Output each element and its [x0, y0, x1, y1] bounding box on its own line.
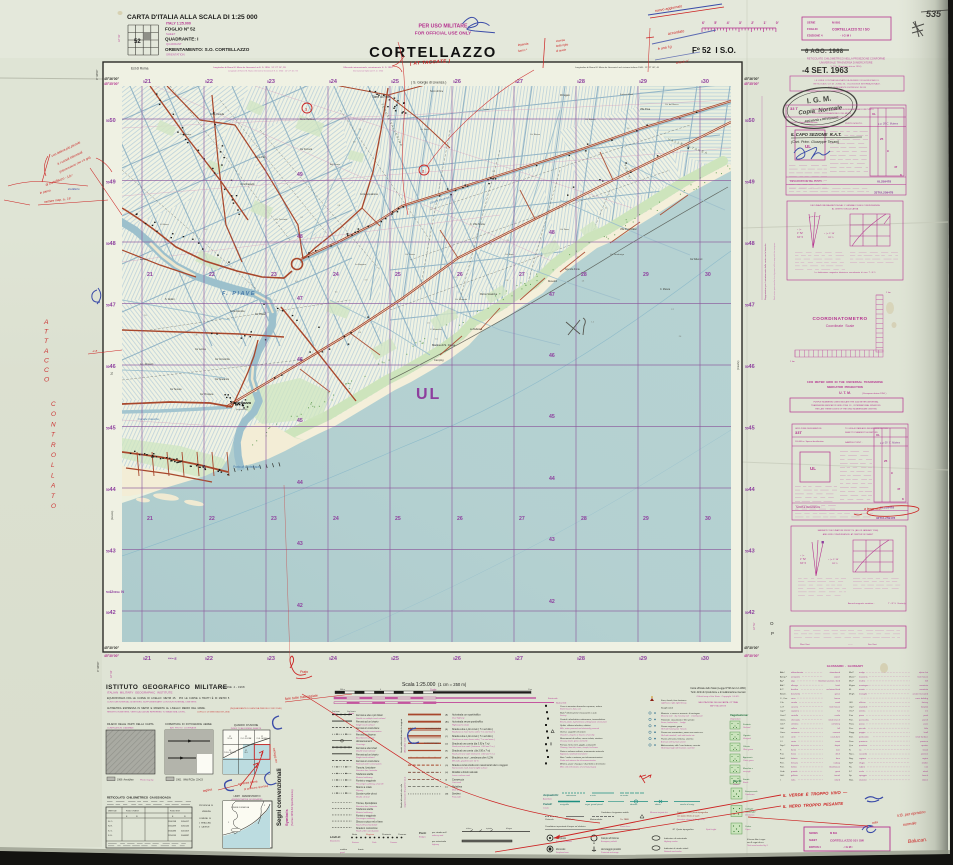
svg-text:5050417: 5050417 [181, 821, 190, 823]
svg-text:Ca' Prospera: Ca' Prospera [200, 393, 214, 396]
svg-text:Sp.: Sp. [849, 775, 853, 777]
svg-text:26: 26 [457, 272, 463, 278]
svg-text:province: province [920, 740, 929, 743]
svg-text:45°36'00”: 45°36'00” [744, 77, 759, 81]
svg-text:molgo: molgo [859, 672, 866, 674]
svg-text:small harbour: small harbour [915, 736, 928, 739]
svg-text:Road,two or more lanes wide (: Road,two or more lanes wide ( 7 m and mo… [452, 731, 495, 734]
svg-text:abandoned: abandoned [830, 672, 841, 674]
svg-text:Staz.ⁱⁱ radio e antenne per te: Staz.ⁱⁱ radio e antenne per telecomunica… [560, 756, 603, 759]
svg-text:Ca' Gradenigo: Ca' Gradenigo [610, 253, 625, 256]
svg-text:Bosch.: Bosch. [780, 694, 787, 696]
svg-text:Trincea, Spondplane: Trincea, Spondplane [356, 803, 378, 805]
svg-text:Strada a due o più corsie ( 7: Strada a due o più corsie ( 7 m ed oltre… [452, 735, 493, 738]
svg-text:Electric plants, hydroelectric: Electric plants, hydroelectric undergrou… [560, 721, 607, 724]
svg-text:Ca' Fornera: Ca' Fornera [300, 148, 313, 151]
svg-text:1.8: 1.8 [144, 315, 147, 317]
svg-text:su arcate: su arcate [620, 794, 629, 797]
svg-text:cascina: cascina [791, 706, 799, 708]
svg-text:Limiti di:: Limiti di: [330, 835, 341, 839]
svg-text:Ellissoide internazionale, ori: Ellissoide internazionale, orientamento … [343, 66, 393, 69]
svg-text:Ancoraggio protetto: Ancoraggio protetto [600, 848, 622, 851]
svg-text:1° 52': 1° 52' [797, 232, 804, 235]
svg-text:Stone houses, huts, ruin: Stone houses, huts, ruin [560, 708, 581, 711]
svg-text:A: A [50, 483, 55, 490]
svg-text:Ca' Alberoni: Ca' Alberoni [690, 258, 703, 261]
svg-text:Longitude of Rome M. Mario ref: Longitude of Rome M. Mario referred to G… [228, 70, 299, 73]
svg-text:passo: passo [859, 724, 865, 726]
svg-text:station: station [922, 779, 929, 782]
svg-text:Ferrovia ad un binario: Ferrovia ad un binario [356, 754, 379, 756]
svg-text:S. Isidoro: S. Isidoro [165, 298, 175, 301]
svg-text:2.1: 2.1 [430, 208, 433, 210]
svg-text:AIR PHOTO COVERAGE: AIR PHOTO COVERAGE [170, 726, 197, 729]
svg-text:Crossings: Crossings [356, 743, 365, 746]
svg-text:Scala 1:25.000: Scala 1:25.000 [402, 682, 436, 688]
svg-text:Strada ad una corsia (da 3.50: Strada ad una corsia (da 3.50 a 7 m) [452, 750, 490, 753]
svg-text:Campo di fortuna: Campo di fortuna [601, 837, 619, 840]
svg-text:abbandonato: abbandonato [791, 671, 804, 674]
svg-text:Ponti:: Ponti: [419, 831, 426, 835]
svg-text:0° 16'00”: 0° 16'00” [95, 70, 99, 80]
svg-text:pass: pass [924, 724, 928, 726]
svg-text:33TUL259478: 33TUL259478 [874, 191, 894, 195]
svg-text:Parr.: Parr. [849, 718, 854, 721]
svg-text:rivestimento leggero: rivestimento leggero [424, 742, 439, 745]
svg-text:Radio and antenna for telecomm: Radio and antenna for telecommunication [560, 759, 596, 762]
svg-text:S. O.: S. O. [108, 830, 113, 832]
svg-text:ospedale: ospedale [859, 706, 868, 708]
svg-text:RILIEVO DELLE PARTI DELLA: RILIEVO DELLE PARTI DELLA CARTA [107, 723, 154, 726]
svg-text:UL: UL [805, 144, 811, 149]
svg-text:49: 49 [297, 172, 303, 178]
svg-text:factory: factory [922, 701, 929, 704]
svg-text:522: 522 [205, 79, 213, 85]
svg-text:Boundaries: Boundaries [330, 840, 340, 842]
svg-text:Ca' Rossa: Ca' Rossa [530, 134, 541, 136]
svg-text:moraghe: moraghe [859, 693, 868, 696]
svg-text:Fatt.ᵃ: Fatt.ᵃ [780, 757, 785, 760]
svg-text:Road,two or more lanes wide (: Road,two or more lanes wide ( 7 m and mo… [452, 738, 495, 741]
svg-text:C: C [44, 357, 49, 364]
svg-text:46: 46 [297, 357, 303, 363]
svg-text:530: 530 [701, 656, 709, 662]
svg-text:Corte Cortelle: Corte Cortelle [210, 113, 225, 116]
svg-text:45°35'00”: 45°35'00” [744, 82, 759, 86]
svg-text:Agrumeto: Agrumeto [742, 756, 753, 759]
svg-text:IV S.E. JESOLO: IV S.E. JESOLO [224, 752, 236, 754]
svg-text:Attraversamenti: Attraversamenti [355, 740, 373, 743]
svg-text:Porto di Cortellazzo: Porto di Cortellazzo [233, 465, 261, 469]
svg-text:45°30'00”: 45°30'00” [744, 654, 759, 658]
svg-text:RETICOLATO U.T.M. ZONA 33 ,: RETICOLATO U.T.M. ZONA 33 , ELLISSOIDE I… [814, 83, 881, 86]
svg-text:THE LAST THREE DIGITS OF THE G: THE LAST THREE DIGITS OF THE GRID NUMBER… [815, 408, 878, 411]
svg-text:Coll.: Coll. [780, 728, 785, 730]
svg-text:Ferr.: Ferr. [780, 761, 785, 764]
svg-text:+ | = 1° 36': + | = 1° 36' [824, 233, 835, 235]
svg-text:Abbeveratoio, abb.ᵒ con fontan: Abbeveratoio, abb.ᵒ con fontana, cascata [660, 744, 701, 747]
svg-text:QUADRANT: QUADRANT [166, 42, 182, 46]
svg-text:45°35'00”: 45°35'00” [104, 82, 119, 86]
svg-text:Official map of the State. Co: Official map of the State. Copyright I.G… [697, 695, 740, 698]
svg-text:27: 27 [519, 272, 525, 278]
svg-text:26: 26 [457, 516, 463, 522]
svg-text:Ferrovia ad un binario: Ferrovia ad un binario [356, 722, 379, 724]
svg-text:Agenzia Fonte: Agenzia Fonte [565, 268, 581, 271]
svg-text:ORIENTATION: ORIENTATION [166, 52, 185, 56]
svg-text:2.2: 2.2 [671, 309, 674, 311]
svg-text:Ski-lift, ski trail: Ski-lift, ski trail [356, 795, 370, 798]
svg-text:Fort.: Fort. [780, 766, 785, 769]
svg-text:railway: railway [834, 761, 841, 764]
svg-text:Woods: Woods [733, 784, 739, 786]
svg-text:Mass.ᵃ: Mass.ᵃ [849, 676, 856, 678]
svg-text:Pietra o colonna miliaria, mon: Pietra o colonna miliaria, monumento not… [560, 750, 605, 753]
svg-text:Corte Castello: Corte Castello [240, 183, 255, 186]
svg-text:Regione: Regione [366, 834, 375, 836]
svg-text:Dual highway: Dual highway [452, 717, 465, 719]
svg-text:MAP EVALUATION: MAP EVALUATION [710, 704, 727, 707]
svg-text:parish: parish [922, 718, 929, 721]
svg-text:N. O.: N. O. [108, 821, 113, 823]
svg-text:bonifica: bonifica [791, 689, 799, 691]
svg-text:527: 527 [515, 79, 523, 85]
svg-text:Comune: Comune [398, 834, 407, 836]
svg-text:Sempreverde: Sempreverde [745, 790, 758, 793]
svg-text:0.6: 0.6 [489, 243, 492, 245]
svg-text:Masonry wall dry masonry wa: Masonry wall dry masonry wall retaining … [661, 715, 703, 718]
svg-text:( S. Giorgio di Livenza ): ( S. Giorgio di Livenza ) [411, 81, 446, 85]
svg-text:Lighthouse, light, lighted buo: Lighthouse, light, lighted buoy [661, 702, 688, 705]
svg-text:2.1: 2.1 [605, 208, 608, 210]
svg-text:Slipway: Slipway [356, 790, 364, 792]
svg-text:46: 46 [549, 353, 555, 359]
svg-text:con rivestimento duro: con rivestimento duro [425, 727, 441, 730]
svg-text:wharf: wharf [923, 770, 929, 773]
svg-text:+ | =: + | = [800, 555, 805, 557]
svg-text:CON L'APPROSSIMAZIONE DI 100 M: CON L'APPROSSIMAZIONE DI 100 METRI [812, 112, 852, 115]
svg-text:52: 52 [245, 736, 247, 738]
svg-text:Strada con muri , pendenza ol: Strada con muri , pendenza oltre il 12% [452, 757, 493, 760]
svg-text:Sbocco a picco ed a frana: Sbocco a picco ed a frana [356, 822, 383, 824]
svg-text:International Spheroid E. D.: International Spheroid E. D. 1950 [353, 70, 384, 73]
svg-text:Stato: Stato [352, 833, 358, 836]
svg-text:L: L [51, 472, 55, 479]
svg-text:UL259478: UL259478 [877, 180, 891, 184]
svg-text:Canali:: Canali: [543, 802, 552, 806]
svg-text:0.8: 0.8 [194, 335, 197, 337]
svg-text:(Norme 1959-64 Specifications): (Norme 1959-64 Specifications) [290, 789, 294, 826]
svg-text:Protected anchorage: Protected anchorage [601, 851, 619, 854]
svg-text:Vegetazione:: Vegetazione: [730, 713, 748, 717]
svg-text:1961 Wild RC5a 23×23: 1961 Wild RC5a 23×23 [176, 778, 203, 781]
svg-text:Canals: Canals [543, 807, 549, 809]
svg-text:DESIGNAZIONE DEL PUNTO :: DESIGNAZIONE DEL PUNTO : [790, 180, 824, 183]
svg-text:fiume: fiume [791, 749, 797, 751]
svg-text:F. PIAVE: F. PIAVE [222, 291, 256, 297]
svg-text:Autostrada con spartitraffico: Autostrada con spartitraffico [451, 714, 481, 717]
svg-text:- I G M I: - I G M I [840, 34, 851, 38]
svg-text:Vigneto: Vigneto [743, 734, 751, 737]
svg-text:47: 47 [297, 296, 303, 302]
svg-text:Statute mile: Statute mile [548, 697, 558, 700]
svg-text:▴ q. 05 C. Mutera: ▴ q. 05 C. Mutera [878, 122, 898, 126]
svg-text:Well with windmill, well with: Well with windmill, well with bucket etc… [661, 734, 695, 737]
svg-text:boschetto: boschetto [791, 693, 801, 696]
svg-text:Il bosco fitto è rappr.: Il bosco fitto è rappr. [747, 838, 766, 841]
svg-text:Ag.ᵃ: Ag.ᵃ [780, 680, 784, 683]
svg-text:Cast.ᵒ: Cast.ᵒ [780, 714, 786, 717]
svg-text:rudere: rudere [859, 766, 866, 769]
svg-text:2': 2' [751, 21, 754, 25]
svg-text:30: 30 [705, 272, 711, 278]
svg-text:Thick wood marked by 3: Thick wood marked by 3 [747, 845, 768, 847]
svg-text:FOR OFFICIAL USE ONLY: FOR OFFICIAL USE ONLY [415, 31, 471, 36]
svg-text:5040887: 5040887 [181, 835, 190, 837]
svg-text:mountain: mountain [919, 684, 928, 687]
svg-text:1000 METER GRID IN THE UN: 1000 METER GRID IN THE UNIVERSAL TRANSVE… [807, 380, 883, 384]
svg-text:cespugli: cespugli [743, 771, 751, 773]
svg-text:M 891: M 891 [832, 21, 841, 25]
svg-text:Acquedotti:: Acquedotti: [542, 793, 559, 797]
svg-text:Ca' Emo: Ca' Emo [505, 254, 514, 256]
svg-text:canal: canal [835, 702, 841, 704]
svg-text:AND GRID CONVERGENCE AT CENTE: AND GRID CONVERGENCE AT CENTER OF SHEET [823, 533, 874, 536]
svg-text:COORDINATOMETRO: COORDINATOMETRO [812, 316, 867, 321]
svg-text:parrocchia: parrocchia [859, 718, 870, 721]
svg-text:42: 42 [297, 603, 303, 609]
svg-text:Mul.ᵒ: Mul.ᵒ [849, 681, 854, 683]
svg-text:FOGLIO: FOGLIO [807, 27, 819, 31]
svg-text:Corte Palù: Corte Palù [255, 156, 267, 159]
svg-text:knoll: knoll [924, 732, 929, 734]
svg-text:Chies.: Chies. [780, 719, 786, 721]
svg-text:Aqueducts: Aqueducts [542, 797, 552, 800]
svg-text:RETICOLATO CHILOMETRICO GAUS: RETICOLATO CHILOMETRICO GAUSS-BOAGA [107, 796, 171, 800]
svg-text:- I G M I: - I G M I [843, 845, 853, 849]
svg-text:Ca' Bianca: Ca' Bianca [585, 119, 596, 121]
svg-text:Latifoglie: Latifoglie [745, 808, 754, 811]
svg-text:2.8: 2.8 [337, 205, 340, 207]
svg-text:Road,one lane wide ( between: Road,one lane wide ( between 3.50 and 7 … [452, 752, 495, 755]
svg-text:7a. 1969: 7a. 1969 [620, 819, 629, 821]
svg-text:Muriccio a secco e macerie d: Muriccio a secco e macerie di sostegno [661, 712, 700, 715]
svg-text:25: 25 [884, 459, 888, 463]
svg-text:Cortellazzo: Cortellazzo [231, 401, 252, 405]
svg-text:M.gna: M.gna [849, 685, 856, 687]
svg-text:Scovia e piste da sci: Scovia e piste da sci [356, 793, 377, 796]
svg-text:(1 cm = 250 m): (1 cm = 250 m) [438, 682, 467, 687]
svg-text:Bridges: Bridges [419, 836, 426, 838]
svg-text:CORTELLAZZO 52 I SW: CORTELLAZZO 52 I SW [830, 839, 864, 843]
svg-text:Abb.ᵉ: Abb.ᵉ [780, 671, 785, 674]
svg-text:mountain: mountain [919, 688, 928, 691]
svg-text:Strada ad una corsia (da 3.50: Strada ad una corsia (da 3.50 a 7 m) [452, 742, 490, 745]
svg-text:Sentiero: Sentiero [452, 793, 461, 796]
svg-text:Corte Favorita: Corte Favorita [230, 310, 245, 313]
svg-text:ORIENTAMENTO: S.O. CORTELLAZZO: ORIENTAMENTO: S.O. CORTELLAZZO [165, 47, 250, 52]
svg-text:Coniferous: Coniferous [745, 794, 755, 796]
svg-text:RETICOLATO CHILOMETRICO NELLA: RETICOLATO CHILOMETRICO NELLA PROIEZIONE… [807, 57, 886, 61]
svg-text:Stab.ᵗⁱ informazione estaccian: Stab.ᵗⁱ informazione estacciante o auto [560, 711, 597, 714]
svg-text:528: 528 [577, 79, 585, 85]
svg-text:(INQUADRANTE DI GENOVA PERIODO: (INQUADRANTE DI GENOVA PERIODO 1937-1946… [230, 707, 282, 710]
svg-text:21: 21 [147, 516, 153, 522]
svg-text:(Cart. Princ. Giuseppe Tesani): (Cart. Princ. Giuseppe Tesani) [791, 140, 839, 144]
svg-text:confine: confine [340, 849, 348, 851]
svg-text:SHEET: SHEET [166, 32, 176, 36]
svg-text:di legno: di legno [506, 828, 512, 830]
svg-text:30: 30 [705, 516, 711, 522]
svg-text:O: O [51, 411, 56, 418]
svg-text:Segni convenzionali: Segni convenzionali [277, 768, 283, 826]
svg-text:O: O [770, 621, 774, 626]
svg-text:Artesian well fountain cistern: Artesian well fountain cistern [660, 740, 686, 743]
svg-text:UL: UL [876, 433, 880, 437]
svg-text:27: 27 [519, 516, 525, 522]
svg-text:grande: grande [791, 770, 798, 773]
svg-text:Photo map by: Photo map by [140, 778, 154, 781]
svg-text:525: 525 [391, 656, 399, 662]
svg-text:Ferrovia in costruzione: Ferrovia in costruzione [356, 760, 380, 763]
svg-text:Cart track: Cart track [452, 781, 462, 784]
svg-text:Metanodotto: Metanodotto [590, 818, 603, 821]
svg-text:12° 42': 12° 42' [118, 34, 121, 42]
svg-text:Chiese, cappelle ed oratori: Chiese, cappelle ed oratori [560, 731, 586, 734]
svg-text:M.rgh: M.rgh [849, 693, 855, 696]
svg-text:MERCATOR PROJECTION: MERCATOR PROJECTION [827, 385, 863, 389]
svg-text:48: 48 [297, 234, 303, 240]
svg-text:Due binari: Due binari [332, 710, 340, 713]
svg-text:collina: collina [791, 728, 798, 730]
svg-text:junction: junction [920, 753, 929, 756]
svg-text:Rock cliff and landslide: Rock cliff and landslide [356, 824, 378, 826]
svg-text:region: region [922, 757, 929, 760]
svg-text:2.8: 2.8 [359, 129, 362, 131]
svg-text:house: house [834, 698, 841, 700]
svg-text:Fº 52 I S.O.: Fº 52 I S.O. [692, 46, 736, 55]
svg-text:0.9: 0.9 [295, 281, 298, 283]
svg-text:(B): (B) [445, 729, 448, 731]
svg-text:DESIGNAZIONE DI ZONA: PER LA: DESIGNAZIONE DI ZONA: PER LA DESIGNAZION… [812, 108, 874, 111]
svg-text:(A): (A) [445, 714, 448, 717]
svg-text:Pozzo con aeromotore, pozzo co: Pozzo con aeromotore, pozzo con noria ec… [661, 731, 704, 734]
svg-text:fronte: fronte [358, 848, 364, 851]
svg-text:528: 528 [577, 656, 585, 662]
svg-text:22: 22 [209, 272, 215, 278]
svg-text:2340483: 2340483 [168, 830, 177, 832]
svg-text:Double or multiple track railr: Double or multiple track railroad [356, 717, 386, 720]
svg-text:coast: coast [835, 740, 840, 743]
svg-text:hotel: hotel [835, 684, 840, 687]
svg-text:Chimney, lime kiln, tower, ste: Chimney, lime kiln, tower, steeple, bell… [560, 746, 598, 749]
svg-text:Declination protractor for the: Declination protractor for the alignment… [773, 243, 776, 300]
svg-text:⁰⁰⁰ᵐ E: ⁰⁰⁰ᵐ E [168, 657, 177, 661]
svg-text:Aerop.ᵒ: Aerop.ᵒ [780, 675, 787, 678]
svg-text:C. Trinità: C. Trinità [480, 108, 490, 111]
svg-text:Orchard: Orchard [743, 727, 751, 729]
svg-text:—·—: —·— [848, 644, 853, 646]
svg-text:Foot path: Foot path [452, 796, 462, 799]
svg-text:castle: castle [835, 714, 841, 717]
svg-text:shelter: shelter [922, 761, 929, 764]
svg-text:pizzo: pizzo [859, 715, 865, 717]
svg-text:5050145: 5050145 [181, 826, 190, 828]
svg-text:EDITION 4: EDITION 4 [809, 846, 821, 849]
svg-text:QUADRO D'UNIONE: QUADRO D'UNIONE [234, 724, 259, 727]
svg-text:costa: costa [791, 740, 797, 743]
svg-text:52: 52 [245, 750, 247, 752]
svg-text:28ᶜ'.5: 28ᶜ'.5 [832, 563, 838, 565]
svg-text:S.ᵒ: S.ᵒ [849, 771, 852, 773]
svg-text:Ca' Gamba: Ca' Gamba [180, 134, 192, 136]
svg-text:CONTOUR INTERVAL 25 METERS. SU: CONTOUR INTERVAL 25 METERS. SUPPLEMENTAR… [107, 701, 197, 704]
svg-text:33 T: 33 T [790, 106, 799, 111]
svg-text:Well with hand pump Tonada: Well with hand pump Tonada [661, 728, 687, 731]
svg-text:COMPILATION DIAGRAM: COMPILATION DIAGRAM [107, 726, 134, 729]
svg-text:officina: officina [859, 702, 866, 704]
svg-text:C., Cas.: C., Cas. [780, 698, 788, 700]
svg-text:45°30'00”: 45°30'00” [744, 646, 759, 650]
svg-text:Scogli isolati: Scogli isolati [661, 707, 673, 710]
svg-text:6': 6' [702, 21, 705, 25]
svg-text:2.5: 2.5 [427, 322, 430, 324]
svg-text:R: R [51, 442, 56, 449]
svg-text:Strada a corsia stretta con ma: Strada a corsia stretta con massimondo d… [452, 764, 509, 767]
svg-text:Carta ufficiale dello Stato (L: Carta ufficiale dello Stato (Legge N°68 … [690, 687, 746, 690]
svg-text:Spot height: Spot height [706, 828, 717, 831]
svg-text:LIVELLO DI GENOVA 1937-1946: LIVELLO DI GENOVA 1937-1946 [196, 711, 230, 714]
svg-text:45: 45 [549, 414, 555, 420]
svg-text:SHEET TO NEAREST 100 METERS: SHEET TO NEAREST 100 METERS [845, 431, 878, 434]
svg-text:521: 521 [143, 656, 151, 662]
svg-text:1.7: 1.7 [274, 300, 277, 302]
svg-text:5': 5' [714, 21, 717, 25]
svg-text:4': 4' [727, 21, 730, 25]
svg-text:per strada ord.ᵃ: per strada ord.ᵃ [432, 831, 447, 834]
svg-text:Material cableway: Material cableway [356, 776, 374, 779]
svg-text:Miniera, pozzi d'acqua e di p: Miniera, pozzi d'acqua e di petrolio o d… [560, 763, 606, 766]
svg-text:Dep.ᵒ: Dep.ᵒ [780, 745, 785, 747]
svg-text:sotterraneo: sotterraneo [566, 794, 577, 797]
svg-text:1 ERACLEA: 1 ERACLEA [199, 822, 211, 825]
svg-text:SAMPLE POINT :: SAMPLE POINT : [845, 441, 863, 444]
svg-text:47: 47 [894, 165, 898, 169]
svg-text:B.ᶜᵒ: B.ᶜᵒ [780, 689, 784, 691]
svg-text:Opifici officina idraulica, e: Opifici officina idraulica, elettrici [560, 724, 591, 727]
svg-text:21: 21 [147, 272, 153, 278]
svg-text:Vegetation:: Vegetation: [730, 718, 741, 721]
svg-text:convento: convento [791, 731, 800, 734]
svg-text:Strade utilizzabili solo nella: Strade utilizzabili solo nella [400, 783, 403, 808]
svg-text:Indicatori di strade statali: Indicatori di strade statali [664, 847, 689, 850]
svg-text:irrigui grandi piccoli: irrigui grandi piccoli [585, 804, 603, 806]
svg-text:ALTIMETRIA ESPRESSA IN METR: ALTIMETRIA ESPRESSA IN METRI E RIFERITA … [107, 707, 206, 710]
svg-text:1966 Aerofylan: 1966 Aerofylan [117, 778, 134, 781]
svg-text:Osp.ᵉ: Osp.ᵉ [849, 706, 854, 708]
svg-text:Symbols: Symbols [284, 809, 289, 826]
svg-text:Ca' Pasian: Ca' Pasian [255, 314, 267, 316]
svg-text:C. Mutera: C. Mutera [660, 288, 671, 291]
svg-text:43: 43 [297, 541, 303, 547]
svg-text:Emergency airfield: Emergency airfield [601, 840, 617, 843]
svg-text:0': 0' [776, 21, 779, 25]
svg-text:Palizzate, staccionata e filo: Palizzate, staccionata e filo spinato [661, 718, 695, 721]
svg-text:ITALIAN MILITARY GEOGRAPHIC: ITALIAN MILITARY GEOGRAPHIC INSTITUTE [107, 691, 172, 695]
svg-text:albergo: albergo [791, 684, 799, 687]
svg-text:3': 3' [739, 21, 742, 25]
svg-text:La Fagiana: La Fagiana [355, 264, 367, 266]
